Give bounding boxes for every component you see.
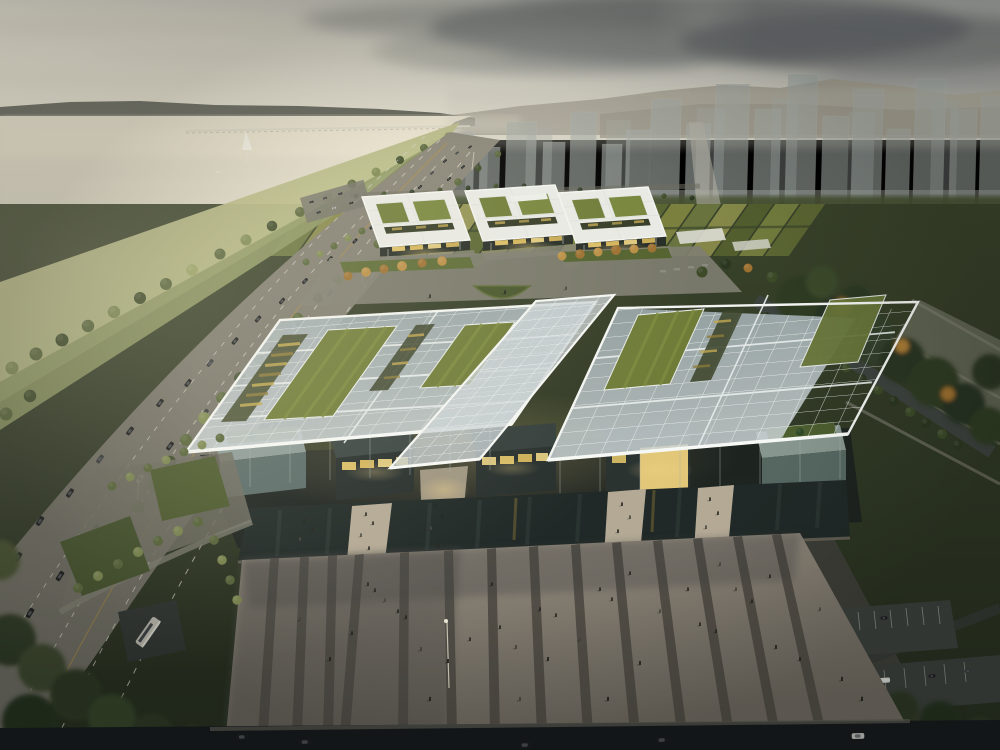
rendering-canvas [0, 0, 1000, 750]
atmosphere-overlays [0, 0, 1000, 750]
architectural-rendering [0, 0, 1000, 750]
vignette [0, 0, 1000, 750]
